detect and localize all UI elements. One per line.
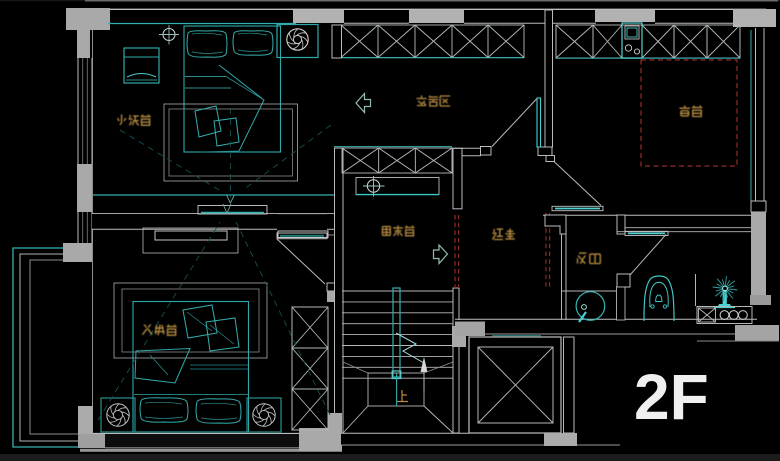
svg-text:2F: 2F bbox=[634, 361, 709, 433]
